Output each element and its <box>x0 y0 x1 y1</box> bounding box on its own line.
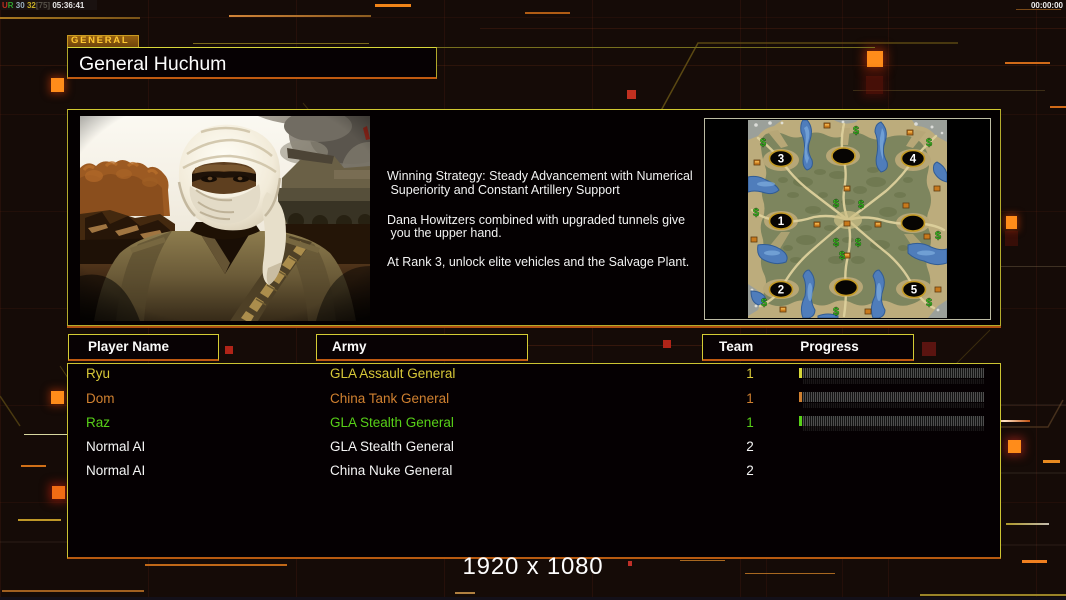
svg-text:$: $ <box>833 198 839 210</box>
svg-text:$: $ <box>853 125 859 137</box>
svg-text:$: $ <box>926 297 932 309</box>
svg-text:$: $ <box>833 306 839 318</box>
svg-text:2: 2 <box>778 285 784 297</box>
svg-text:3: 3 <box>778 154 784 166</box>
svg-text:$: $ <box>935 230 941 242</box>
svg-text:$: $ <box>858 199 864 211</box>
svg-text:5: 5 <box>911 285 918 297</box>
svg-text:$: $ <box>839 250 845 262</box>
svg-text:$: $ <box>833 237 839 249</box>
svg-text:1: 1 <box>778 216 785 228</box>
svg-text:$: $ <box>760 137 766 149</box>
svg-text:4: 4 <box>910 154 917 166</box>
svg-text:$: $ <box>753 207 759 219</box>
svg-text:$: $ <box>761 297 767 309</box>
svg-text:$: $ <box>926 137 932 149</box>
svg-text:$: $ <box>855 237 861 249</box>
